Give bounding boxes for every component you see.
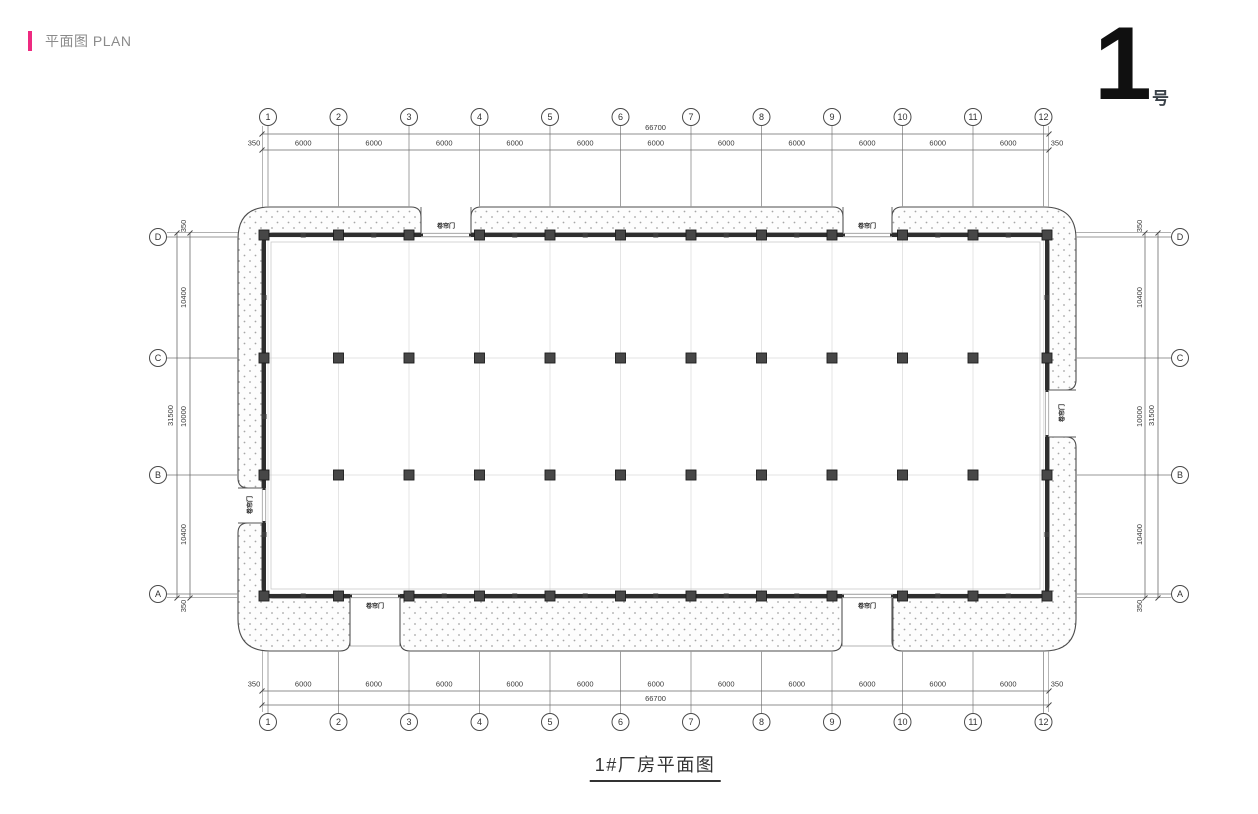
column [968,591,978,601]
column [898,353,908,363]
column [686,591,696,601]
axis-bubble-label: 11 [968,112,977,122]
column [475,470,485,480]
column [259,230,269,240]
column [616,591,626,601]
column [757,470,767,480]
dimension-label: 6000 [859,680,876,689]
axis-bubble: 9 [824,714,841,731]
wall-inner-face-line [271,242,1040,589]
column [1042,470,1052,480]
axis-bubble: 10 [894,714,911,731]
dimension-label: 350 [1135,600,1144,613]
column [616,353,626,363]
total-dimension-bottom: 66700 [645,694,666,703]
column [404,470,414,480]
dimension-label: 6000 [577,680,594,689]
axis-bubble: D [150,229,167,246]
wall-post [262,414,267,419]
page: { "header": { "title": "平面图 PLAN", "acce… [0,0,1258,814]
dimension-label: 350 [248,139,261,148]
column [259,591,269,601]
floor-plan-canvas: 6670066700315003150035035060006000600060… [0,0,1258,814]
column [404,591,414,601]
dimension-label: 350 [179,600,188,613]
column [475,353,485,363]
dimension-label: 6000 [365,680,382,689]
dimension-label: 6000 [859,139,876,148]
axis-bubble-label: 6 [618,112,623,122]
axis-bubble: D [1172,229,1189,246]
wall-post [1045,295,1050,300]
axis-bubble: 9 [824,109,841,126]
axis-bubble-label: 3 [406,112,411,122]
axis-bubble: 11 [965,109,982,126]
axis-bubble: 1 [260,109,277,126]
dimension-label: 6000 [718,680,735,689]
column [404,353,414,363]
column [1042,230,1052,240]
dimension-label: 6000 [647,680,664,689]
axis-bubble: C [1172,350,1189,367]
dimension-label: 6000 [788,139,805,148]
interior-grid-lines [268,237,1044,594]
axis-bubble-label: B [1177,470,1183,480]
column [827,230,837,240]
dimension-label: 350 [1135,220,1144,233]
axis-bubble: 12 [1035,109,1052,126]
total-dimension-right: 31500 [1147,405,1156,426]
door-label: 卷帘门 [1058,404,1066,423]
column [686,470,696,480]
axis-bubble-label: C [1177,353,1184,363]
axis-bubble-label: D [155,232,162,242]
apron-segment [471,207,843,233]
axis-bubble-label: 11 [968,717,977,727]
wall-post [262,295,267,300]
wall-post [1045,532,1050,537]
total-dimension-top: 66700 [645,123,666,132]
dimension-label: 6000 [436,680,453,689]
dimension-label: 10400 [179,287,188,308]
axis-bubble-label: D [1177,232,1184,242]
column [898,230,908,240]
axis-bubble: 4 [471,109,488,126]
axis-bubble: 3 [401,109,418,126]
wall-post [512,594,517,599]
column [968,470,978,480]
column [616,470,626,480]
door-label: 卷帘门 [365,602,384,610]
axis-bubble: 1 [260,714,277,731]
wall-post [583,233,588,238]
axis-bubble-label: 10 [897,112,907,122]
wall-post [301,233,306,238]
column [616,230,626,240]
axis-bubble-label: 5 [547,112,552,122]
axis-bubble-label: 4 [477,717,482,727]
dimension-label: 6000 [1000,680,1017,689]
axis-bubble: A [1172,586,1189,603]
wall-post [301,594,306,599]
door-label: 卷帘门 [857,222,876,230]
column [968,230,978,240]
axis-bubble-label: 9 [829,717,834,727]
axis-bubble: 8 [753,109,770,126]
axis-bubble: 7 [683,714,700,731]
wall-post [583,594,588,599]
axis-bubble: 6 [612,714,629,731]
column [545,470,555,480]
axis-bubble-label: C [155,353,162,363]
axis-bubble-label: 10 [897,717,907,727]
axis-bubble-label: 1 [265,717,270,727]
wall-post [653,233,658,238]
column [757,591,767,601]
axis-bubble: 2 [330,109,347,126]
wall-post [371,233,376,238]
door-label: 卷帘门 [246,496,254,515]
axis-bubble-label: 3 [406,717,411,727]
axis-bubble: 5 [542,714,559,731]
wall-post [724,594,729,599]
axis-bubble-label: 8 [759,717,764,727]
drawing-title: 1#厂房平面图 [590,751,721,782]
apron-segment [238,523,350,651]
axis-bubble: 10 [894,109,911,126]
axis-bubble-label: 2 [336,717,341,727]
dimension-label: 6000 [506,139,523,148]
apron-segment [400,598,842,651]
dimension-label: 6000 [929,139,946,148]
wall-post [935,233,940,238]
dimension-label: 6000 [788,680,805,689]
column [334,353,344,363]
dimension-label: 10400 [1135,524,1144,545]
column [545,230,555,240]
column [259,470,269,480]
dimension-label: 6000 [295,680,312,689]
column [827,591,837,601]
axis-bubble-label: 7 [688,717,693,727]
column [334,230,344,240]
axis-bubble: B [150,467,167,484]
column [898,591,908,601]
column [968,353,978,363]
dimension-label: 350 [1051,139,1064,148]
wall-post [442,594,447,599]
wall-post [794,233,799,238]
column [545,353,555,363]
axis-bubble-label: 12 [1038,112,1048,122]
axis-bubble-label: 1 [265,112,270,122]
axis-bubble-label: 9 [829,112,834,122]
dimension-label: 10000 [1135,406,1144,427]
axis-bubble-label: 4 [477,112,482,122]
column [545,591,555,601]
column [686,230,696,240]
axis-bubble: 6 [612,109,629,126]
column [827,353,837,363]
axis-bubble-label: 7 [688,112,693,122]
dimension-label: 6000 [506,680,523,689]
axis-bubble: 11 [965,714,982,731]
column [1042,353,1052,363]
column [475,230,485,240]
axis-bubble-label: 2 [336,112,341,122]
column [475,591,485,601]
dimension-label: 350 [1051,680,1064,689]
dimension-label: 10400 [1135,287,1144,308]
column [757,353,767,363]
column [259,353,269,363]
dimension-label: 6000 [1000,139,1017,148]
dimension-label: 6000 [436,139,453,148]
axis-bubble-label: 8 [759,112,764,122]
column [757,230,767,240]
dimension-label: 350 [179,220,188,233]
column [334,591,344,601]
axis-bubble: 5 [542,109,559,126]
wall-post [724,233,729,238]
total-dimension-left: 31500 [166,405,175,426]
axis-bubble: 3 [401,714,418,731]
axis-bubble: 2 [330,714,347,731]
axis-bubble: 4 [471,714,488,731]
axis-bubble: B [1172,467,1189,484]
axis-bubble-label: A [1177,589,1183,599]
dimension-label: 10000 [179,406,188,427]
dimension-label: 10400 [179,524,188,545]
dimension-label: 6000 [718,139,735,148]
wall-post [794,594,799,599]
axis-bubble-label: A [155,589,161,599]
columns [259,230,1052,601]
wall-post [653,594,658,599]
axis-bubble-label: 6 [618,717,623,727]
dimension-label: 6000 [295,139,312,148]
wall-post [262,532,267,537]
dimension-label: 6000 [577,139,594,148]
door-label: 卷帘门 [857,602,876,610]
column [404,230,414,240]
dimension-label: 6000 [647,139,664,148]
dimension-label: 6000 [365,139,382,148]
axis-bubble-label: B [155,470,161,480]
column [686,353,696,363]
axis-bubble: A [150,586,167,603]
doors: 卷帘门卷帘门卷帘门卷帘门卷帘门卷帘门 [238,207,1076,646]
column [898,470,908,480]
column [1042,591,1052,601]
axis-bubble: C [150,350,167,367]
dimension-label: 6000 [929,680,946,689]
wall-post [1006,594,1011,599]
axis-bubble-label: 12 [1038,717,1048,727]
walls [262,233,1049,598]
door-label: 卷帘门 [436,222,455,230]
axis-bubble: 7 [683,109,700,126]
axis-bubble: 8 [753,714,770,731]
column [334,470,344,480]
wall-post [512,233,517,238]
column [827,470,837,480]
apron-band [238,207,1076,651]
axis-bubble-label: 5 [547,717,552,727]
wall-post [1006,233,1011,238]
dimension-label: 350 [248,680,261,689]
wall-post [935,594,940,599]
axis-bubble: 12 [1035,714,1052,731]
